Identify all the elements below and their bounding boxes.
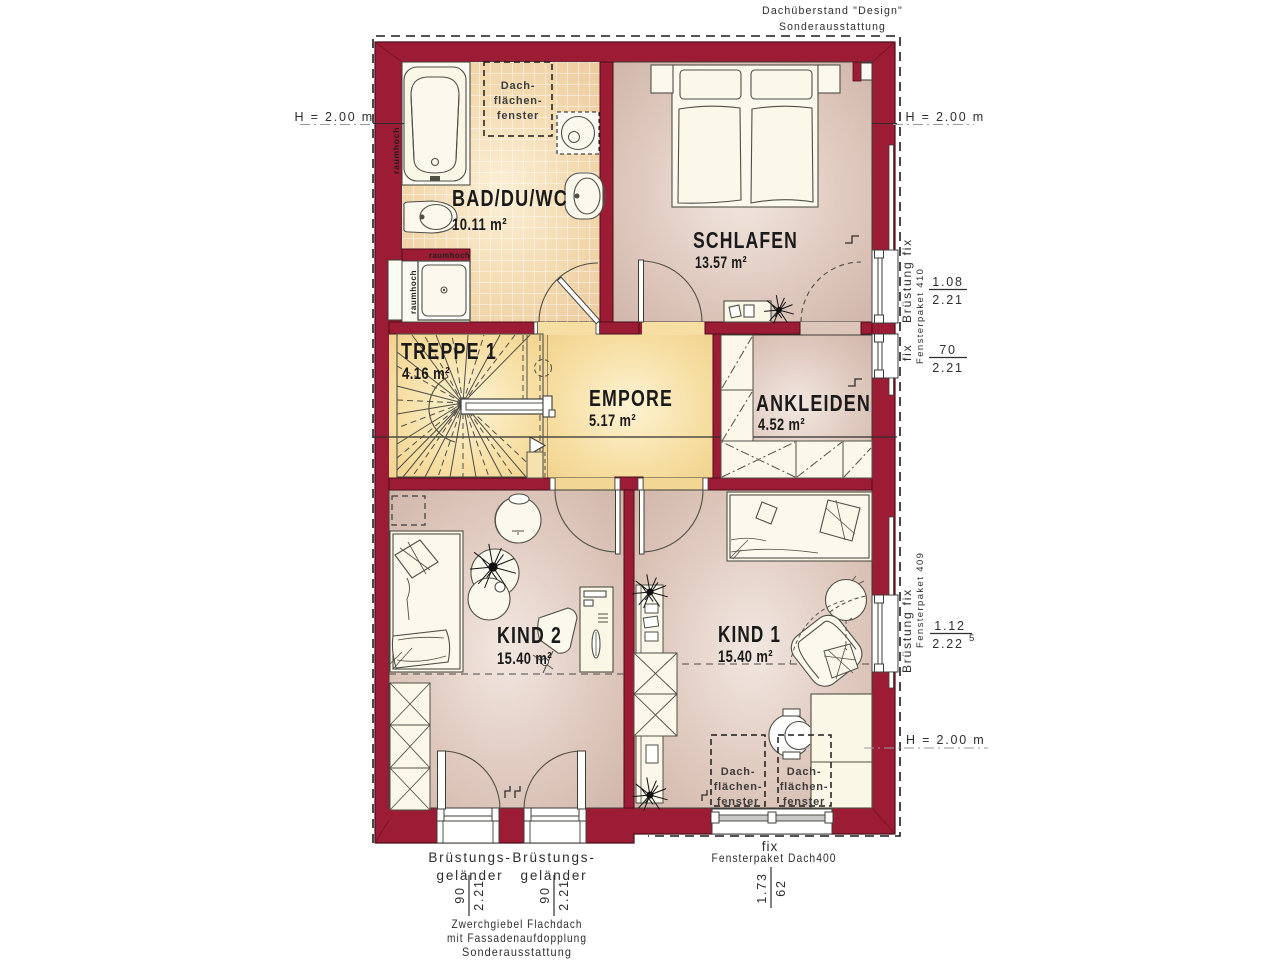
svg-text:Dach-: Dach- (721, 766, 756, 778)
svg-text:Zwerchgiebel Flachdach: Zwerchgiebel Flachdach (452, 917, 583, 931)
svg-text:4.52 m²: 4.52 m² (758, 416, 805, 434)
svg-text:Brüstungs-: Brüstungs- (428, 850, 511, 865)
svg-text:Brüstung fix: Brüstung fix (900, 238, 914, 323)
svg-text:Brüstung fix: Brüstung fix (900, 588, 914, 673)
svg-text:KIND 2: KIND 2 (497, 622, 562, 648)
svg-text:fenster: fenster (783, 796, 825, 808)
svg-text:raumhoch: raumhoch (429, 250, 470, 260)
svg-text:Dach-: Dach- (501, 80, 536, 92)
svg-text:Fensterpaket 409: Fensterpaket 409 (915, 552, 926, 648)
svg-text:flächen-: flächen- (780, 781, 829, 793)
svg-text:4.16 m²: 4.16 m² (402, 365, 450, 383)
svg-text:ANKLEIDEN: ANKLEIDEN (756, 390, 871, 416)
svg-text:Dach-: Dach- (787, 766, 822, 778)
svg-text:1.12: 1.12 (934, 619, 966, 633)
svg-text:2.21: 2.21 (472, 879, 486, 911)
svg-text:SCHLAFEN: SCHLAFEN (693, 227, 798, 253)
svg-text:10.11 m²: 10.11 m² (452, 216, 507, 234)
svg-text:15.40 m²: 15.40 m² (718, 648, 773, 666)
svg-text:13.57 m²: 13.57 m² (695, 254, 747, 272)
svg-text:Fensterpaket Dach400: Fensterpaket Dach400 (712, 851, 837, 865)
svg-text:Brüstungs-: Brüstungs- (512, 850, 595, 865)
svg-text:geländer: geländer (437, 868, 504, 883)
svg-text:15.40 m²: 15.40 m² (497, 650, 552, 668)
svg-text:2.21: 2.21 (932, 293, 964, 307)
svg-text:BAD/DU/WC: BAD/DU/WC (452, 185, 568, 211)
svg-text:raumhoch: raumhoch (391, 127, 401, 174)
svg-text:TREPPE 1: TREPPE 1 (401, 338, 497, 364)
svg-text:KIND 1: KIND 1 (718, 621, 781, 647)
svg-text:EMPORE: EMPORE (589, 385, 673, 411)
svg-text:fenster: fenster (717, 796, 759, 808)
svg-text:1.73: 1.73 (755, 872, 769, 904)
svg-text:90: 90 (453, 886, 467, 904)
svg-text:flächen-: flächen- (494, 95, 543, 107)
svg-text:flächen-: flächen- (714, 781, 763, 793)
svg-text:Sonderausstattung: Sonderausstattung (462, 945, 572, 959)
svg-text:Fensterpaket 410: Fensterpaket 410 (915, 268, 926, 364)
svg-text:raumhoch: raumhoch (408, 270, 418, 314)
svg-text:5: 5 (969, 633, 976, 644)
svg-text:H = 2.00 m: H = 2.00 m (295, 110, 375, 124)
svg-text:Sonderausstattung: Sonderausstattung (779, 21, 886, 33)
svg-text:1.08: 1.08 (932, 275, 964, 289)
svg-text:90: 90 (538, 886, 552, 904)
svg-text:70: 70 (939, 343, 957, 357)
svg-text:mit Fassadenaufdopplung: mit Fassadenaufdopplung (447, 931, 587, 945)
svg-text:Dachüberstand "Design": Dachüberstand "Design" (762, 5, 903, 17)
svg-text:62: 62 (774, 879, 788, 897)
svg-text:5.17 m²: 5.17 m² (589, 412, 636, 430)
svg-text:H = 2.00 m: H = 2.00 m (906, 733, 986, 747)
svg-text:2.22: 2.22 (932, 637, 964, 651)
svg-text:H = 2.00 m: H = 2.00 m (906, 110, 986, 124)
svg-text:2.21: 2.21 (932, 361, 964, 375)
svg-text:fenster: fenster (497, 110, 539, 122)
svg-text:2.21: 2.21 (557, 879, 571, 911)
svg-text:fix: fix (900, 344, 914, 361)
